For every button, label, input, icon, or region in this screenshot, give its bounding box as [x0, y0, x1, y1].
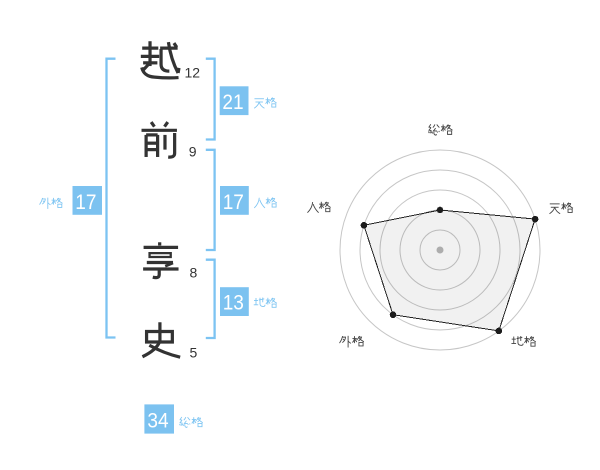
svg-text:8: 8	[190, 265, 198, 281]
svg-text:13: 13	[223, 292, 244, 315]
svg-text:5: 5	[190, 344, 198, 360]
svg-text:17: 17	[223, 191, 244, 214]
svg-text:9: 9	[189, 144, 197, 160]
svg-text:21: 21	[222, 91, 243, 114]
svg-text:12: 12	[185, 65, 201, 81]
svg-text:34: 34	[147, 409, 168, 432]
svg-text:17: 17	[75, 191, 96, 214]
